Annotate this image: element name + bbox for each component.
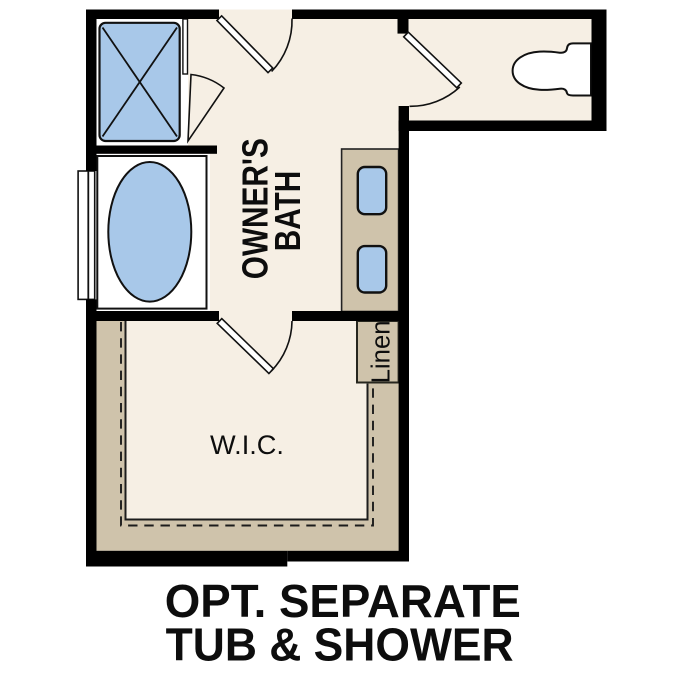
svg-text:TUB & SHOWER: TUB & SHOWER [166, 619, 514, 671]
svg-text:BATH: BATH [267, 171, 308, 252]
svg-text:W.I.C.: W.I.C. [210, 430, 284, 460]
svg-text:Linen: Linen [368, 320, 396, 383]
